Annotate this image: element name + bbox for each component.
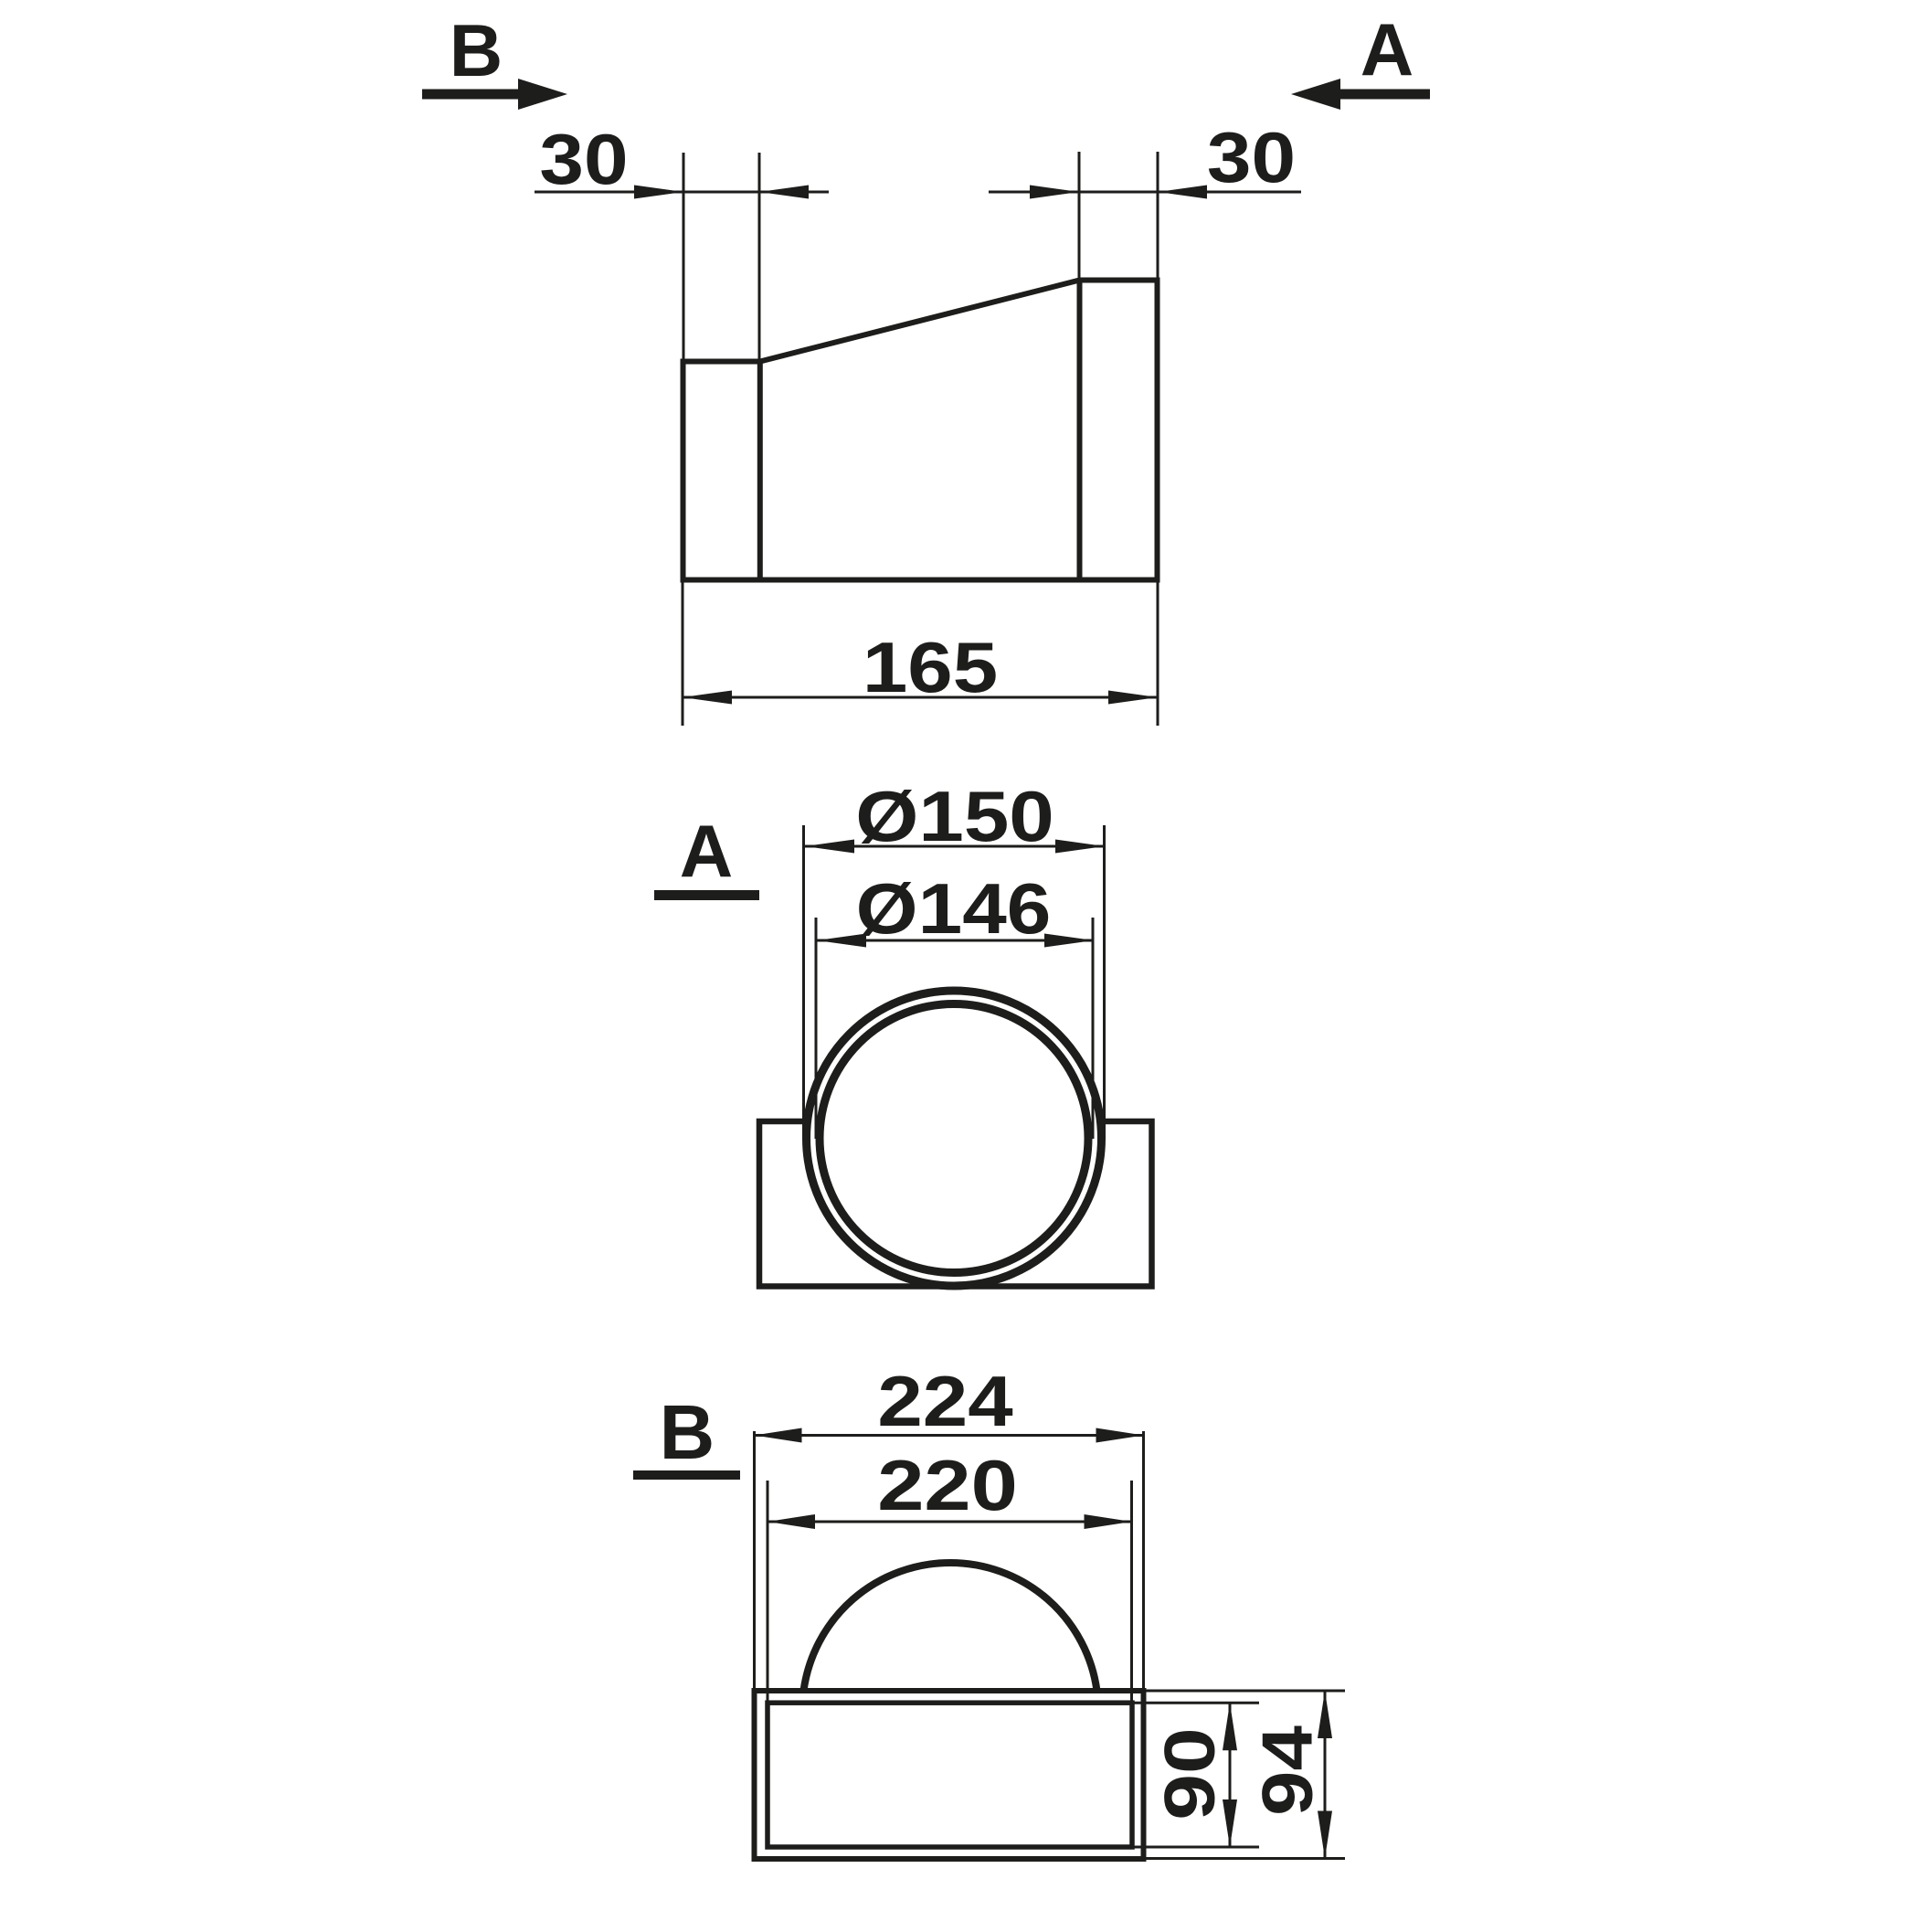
svg-text:224: 224 [877,1361,1013,1441]
svg-text:90: 90 [1149,1727,1229,1821]
svg-text:B: B [660,1389,715,1475]
svg-text:A: A [1361,9,1414,91]
svg-text:165: 165 [863,627,998,707]
svg-text:94: 94 [1247,1725,1328,1816]
svg-text:Ø150: Ø150 [855,776,1053,856]
svg-text:Ø146: Ø146 [856,868,1052,949]
svg-text:30: 30 [1207,117,1296,197]
svg-text:B: B [450,10,503,92]
svg-text:A: A [680,811,734,893]
svg-text:220: 220 [877,1447,1018,1526]
svg-text:30: 30 [539,119,628,199]
